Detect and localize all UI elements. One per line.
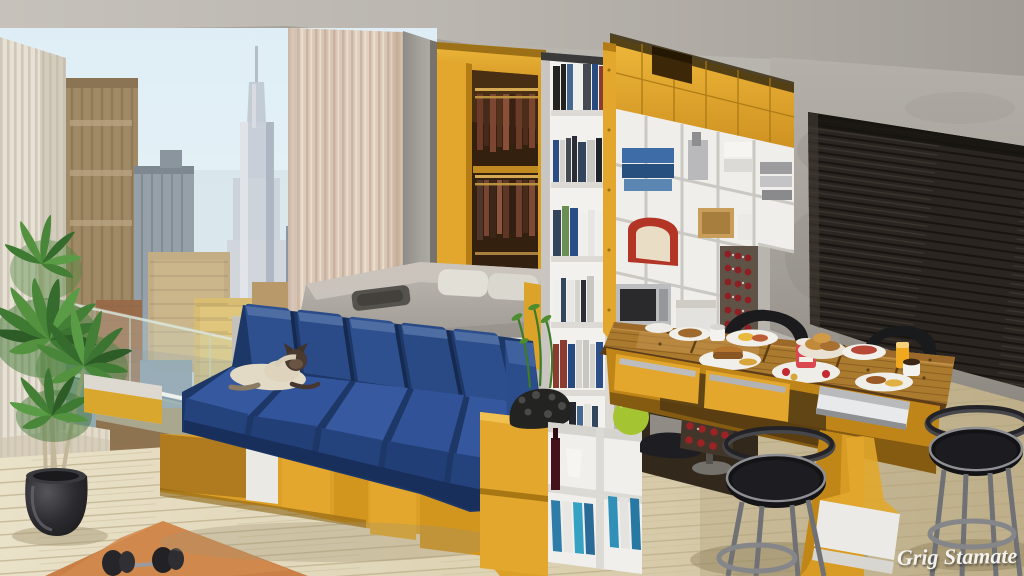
svg-text:Grig Stamate: Grig Stamate bbox=[897, 543, 1018, 570]
